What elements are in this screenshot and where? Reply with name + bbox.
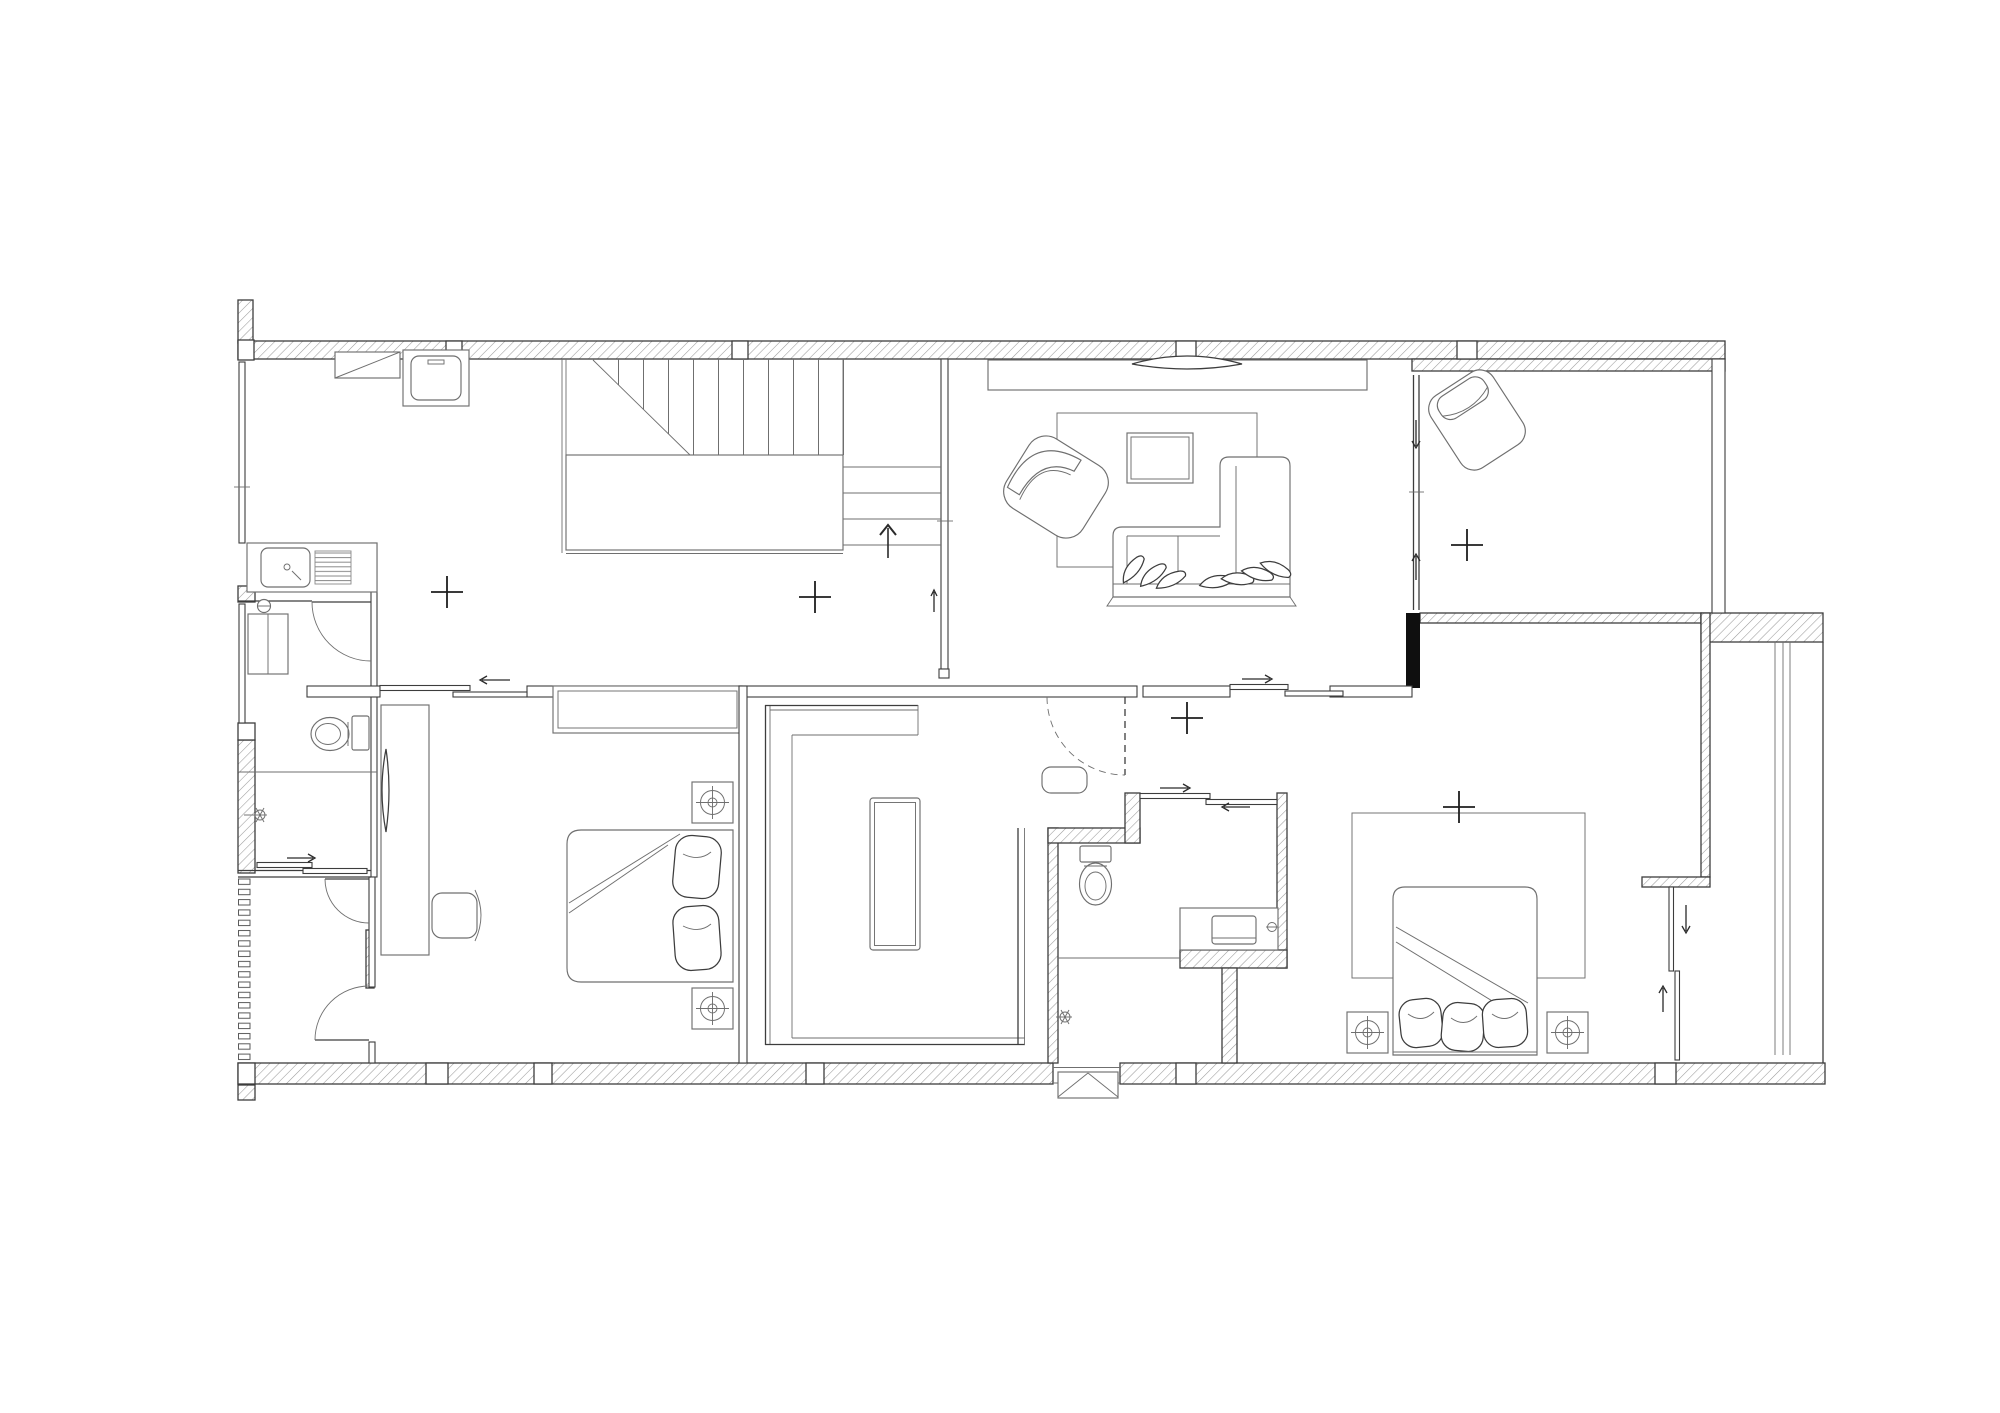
wall-balcony-east [1712,359,1725,613]
bed-bedroom2 [567,830,733,982]
vent-step-box [1053,1068,1120,1099]
wall-mbath-west [1048,828,1058,1063]
pillow [671,834,722,900]
wall-left-block-b [238,740,255,873]
column [1655,1063,1676,1084]
nightstand-lamp-east [1547,1012,1588,1053]
wall-vestibule-east-lower [369,1042,375,1063]
stair-landing [566,455,843,550]
wall-black-pier [1406,613,1420,688]
coffee-table [1127,433,1193,483]
pillow [1481,998,1528,1049]
window-left-lower [239,604,245,723]
wall-bottom-east [1120,1063,1825,1084]
nightstand-lamp-north [692,782,733,823]
wall-corridor-seg3 [1143,686,1230,697]
column [806,1063,824,1084]
floor-plan-canvas [0,0,2000,1413]
column [534,1063,552,1084]
louvered-screen [238,877,251,1063]
wardrobe-bedroom2 [553,686,742,733]
wall-left-stub-bottom [238,1085,255,1100]
window-left-upper [239,362,245,543]
wall-bedroom2-east [739,686,747,1063]
room-living-room [949,359,1412,686]
bed-master [1393,887,1537,1055]
glass-partition-stair [941,359,948,669]
vanity-sink [1180,908,1278,950]
wall-mbath-southeast [1222,968,1237,1063]
washing-machine [403,350,469,406]
wall-pillar-top-left [238,300,253,343]
column [1176,1063,1196,1084]
column [238,1063,255,1084]
pillow [1398,997,1445,1049]
wall-mbath-block [1125,793,1140,843]
wall-master-east-stub [1642,877,1710,887]
toilet-master [1080,846,1112,905]
island-dresser [870,798,920,950]
column [238,723,255,740]
pillow [672,904,722,971]
nightstand-lamp-south [692,988,733,1029]
wall-bath1-east [371,543,377,877]
desk-counter [381,705,429,955]
floor-plan-page [0,0,2000,1413]
wall-balcony-south [1420,613,1701,623]
wall-master-east [1701,613,1710,877]
nightstand-lamp-west [1347,1012,1388,1053]
drainboard [315,551,351,584]
wall-balcony-north [1412,359,1725,371]
pouf [1042,767,1087,793]
column [732,341,748,359]
pillow [1440,1001,1486,1052]
room-closet-corridor [1710,642,1823,1063]
wall-bottom-west [238,1063,1053,1084]
wall-mbath-undercounter [1180,950,1287,968]
column [1457,341,1477,359]
wall-vestibule-east-upper [369,877,375,987]
glass-partition-cap [939,669,949,678]
toilet-1 [311,716,369,751]
column [426,1063,448,1084]
desk-chair [432,890,481,941]
wall-corridor-seg1 [307,686,380,697]
wall-right-wing-north [1701,613,1823,642]
kitchen-sink-counter [247,543,377,592]
column [238,340,254,360]
